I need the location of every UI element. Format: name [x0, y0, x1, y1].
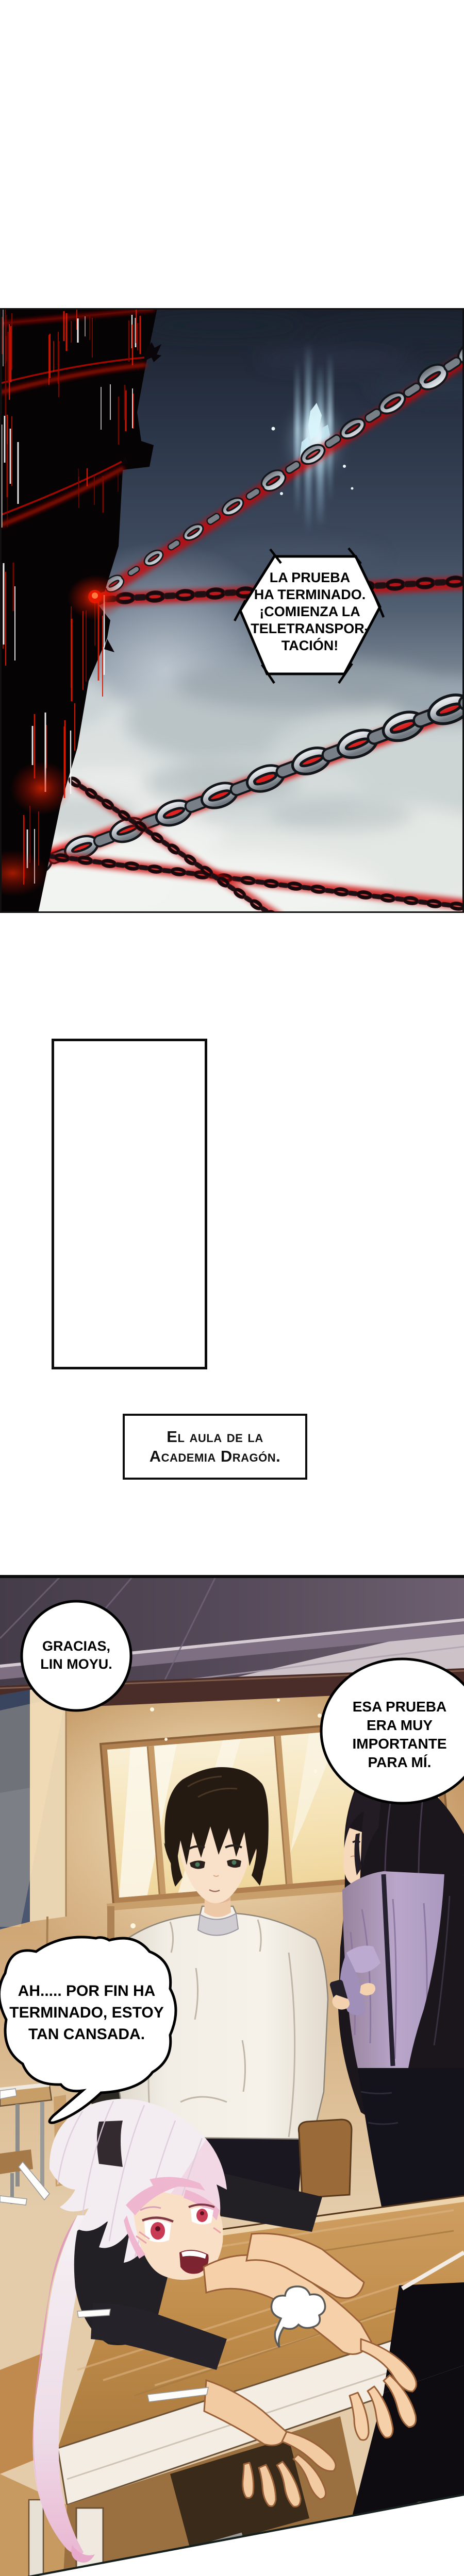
svg-text:AH..... POR FIN HATERMINADO, E: AH..... POR FIN HATERMINADO, ESTOYTAN CA… [9, 1982, 163, 2043]
